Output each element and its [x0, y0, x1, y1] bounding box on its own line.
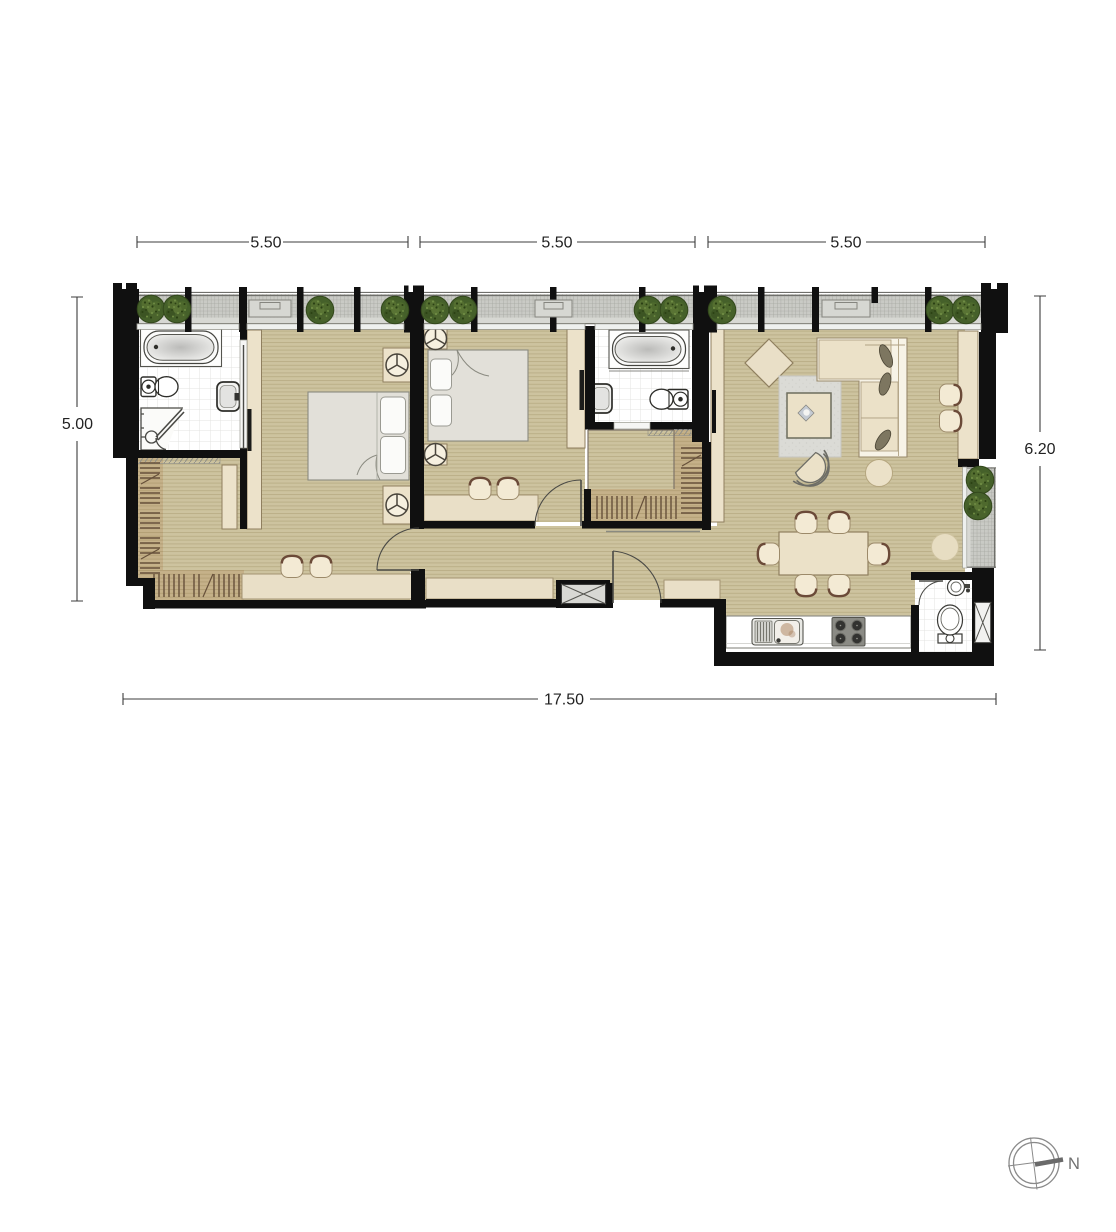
- svg-text:5.50: 5.50: [250, 235, 281, 252]
- svg-text:17.50: 17.50: [544, 692, 584, 709]
- svg-text:5.50: 5.50: [830, 235, 861, 252]
- svg-text:5.00: 5.00: [62, 416, 93, 433]
- svg-text:N: N: [1068, 1155, 1080, 1173]
- svg-text:5.50: 5.50: [541, 235, 572, 252]
- svg-text:6.20: 6.20: [1024, 441, 1055, 458]
